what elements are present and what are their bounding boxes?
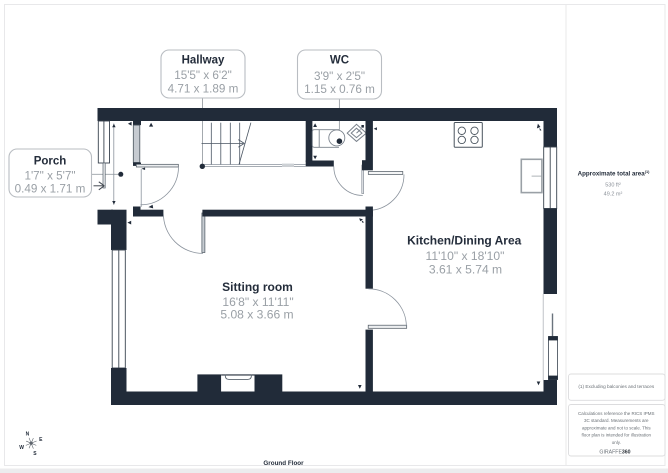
svg-text:(1) Excluding balconies and te: (1) Excluding balconies and terraces xyxy=(578,384,654,389)
svg-text:GIRAFFE360: GIRAFFE360 xyxy=(599,450,630,456)
svg-text:5.08 x 3.66 m: 5.08 x 3.66 m xyxy=(220,307,293,321)
svg-text:0.49 x 1.71 m: 0.49 x 1.71 m xyxy=(15,183,86,196)
svg-text:3.61 x 5.74 m: 3.61 x 5.74 m xyxy=(429,262,502,276)
svg-text:Ground Floor: Ground Floor xyxy=(263,460,304,467)
svg-text:Hallway: Hallway xyxy=(182,55,225,67)
svg-text:3'9" x 2'5": 3'9" x 2'5" xyxy=(314,70,365,83)
svg-text:N: N xyxy=(26,432,30,438)
svg-text:1.15 x 0.76 m: 1.15 x 0.76 m xyxy=(304,83,375,96)
svg-text:floor plan is intended for ill: floor plan is intended for illustration xyxy=(582,433,652,438)
svg-text:approximate and not to scale.: approximate and not to scale. This xyxy=(582,425,651,430)
svg-text:only.: only. xyxy=(612,440,621,445)
svg-text:WC: WC xyxy=(330,54,349,66)
svg-text:530 ft²: 530 ft² xyxy=(605,182,621,188)
svg-text:15'5" x 6'2": 15'5" x 6'2" xyxy=(174,69,232,82)
svg-text:Kitchen/Dining Area: Kitchen/Dining Area xyxy=(407,234,522,248)
svg-text:Calculations reference the RIC: Calculations reference the RICS IPMS xyxy=(578,411,655,416)
svg-text:Sitting room: Sitting room xyxy=(222,280,293,294)
svg-text:W: W xyxy=(19,445,24,451)
svg-text:49.2 m²: 49.2 m² xyxy=(604,192,623,198)
svg-text:Approximate total area(1): Approximate total area(1) xyxy=(578,170,650,178)
svg-text:1'7" x 5'7": 1'7" x 5'7" xyxy=(24,170,75,183)
svg-text:4.71 x 1.89 m: 4.71 x 1.89 m xyxy=(168,83,239,96)
svg-text:11'10" x 18'10": 11'10" x 18'10" xyxy=(426,249,505,263)
svg-text:3C standard. Measurements are: 3C standard. Measurements are xyxy=(584,418,649,423)
svg-text:Porch: Porch xyxy=(34,155,67,167)
